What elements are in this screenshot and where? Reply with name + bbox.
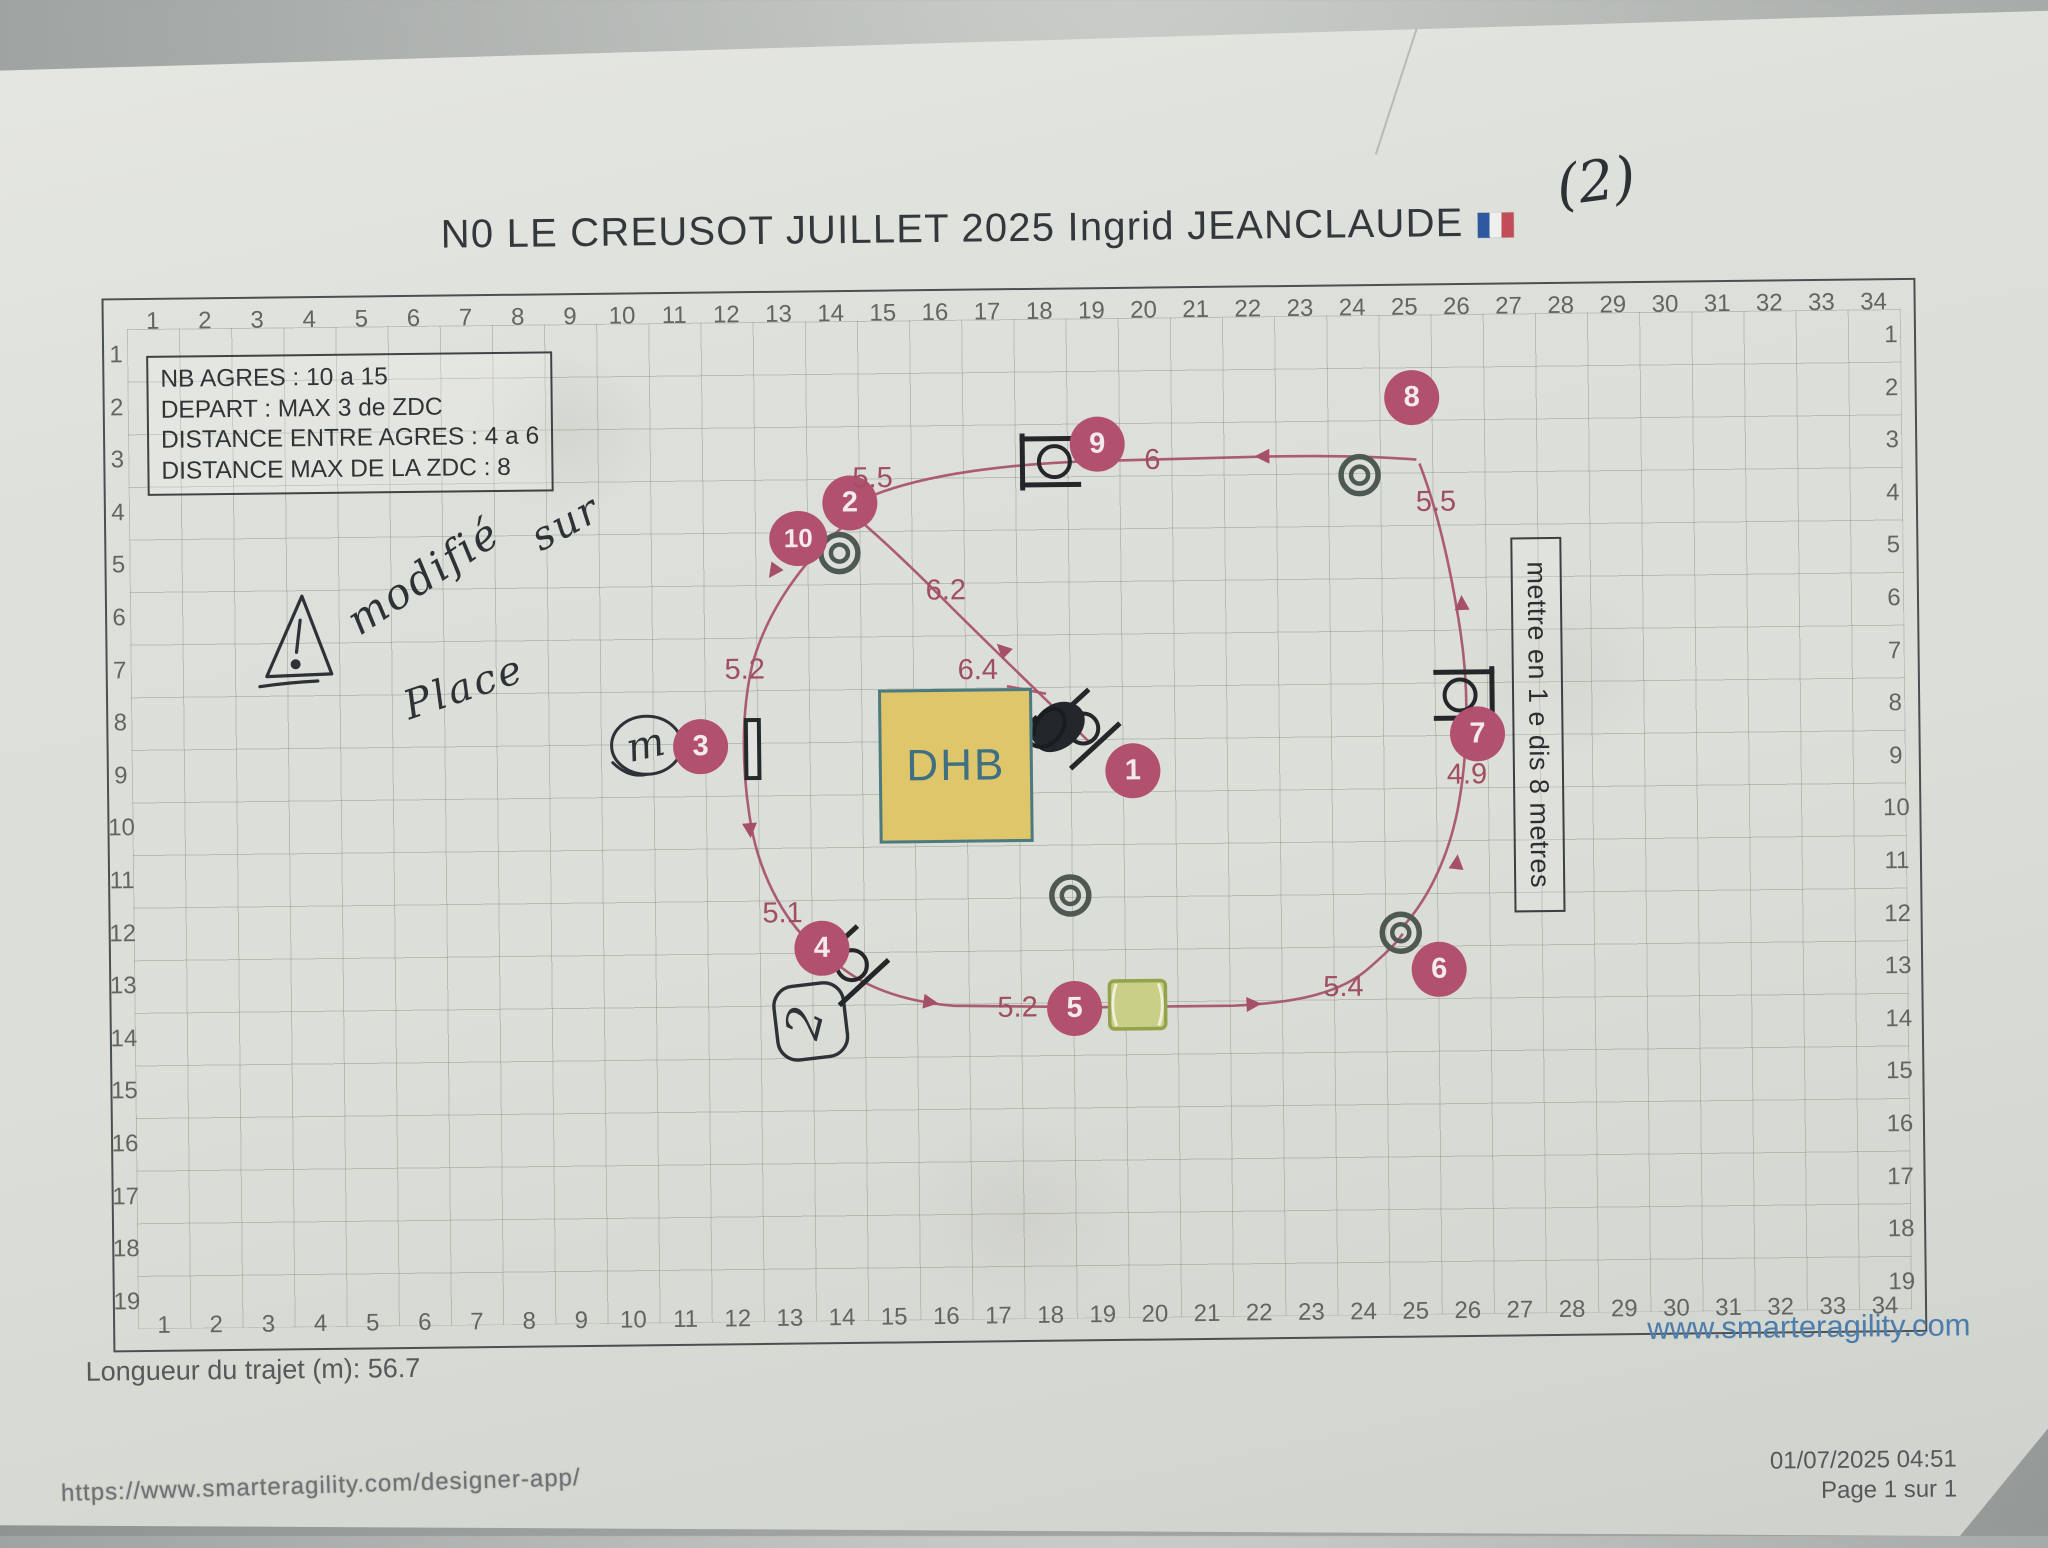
course-path bbox=[1399, 463, 1468, 925]
path-arrowhead bbox=[922, 994, 939, 1011]
course-length-text: Longueur du trajet (m): 56.7 bbox=[85, 1353, 420, 1388]
path-arrowhead bbox=[1449, 853, 1466, 870]
path-arrowhead bbox=[763, 561, 784, 582]
course-path bbox=[845, 455, 1417, 519]
tunnel-entrance-icon bbox=[1382, 914, 1419, 951]
distance-label: 5.5 bbox=[1416, 486, 1457, 519]
path-arrowhead bbox=[742, 823, 758, 839]
print-page-number: Page 1 sur 1 bbox=[1770, 1474, 1957, 1506]
printed-sheet: N0 LE CREUSOT JUILLET 2025 Ingrid JEANCL… bbox=[0, 0, 2048, 1536]
distance-label: 5.2 bbox=[724, 653, 765, 686]
distance-label: 4.9 bbox=[1447, 758, 1488, 791]
tunnel-entrance-icon bbox=[1052, 877, 1089, 914]
tunnel-entrance-icon bbox=[1341, 456, 1378, 493]
print-footer-date-page: 01/07/2025 04:51 Page 1 sur 1 bbox=[1770, 1444, 1958, 1506]
course-marks: 123456789105.565.56.26.45.25.15.25.44.9 bbox=[0, 0, 2040, 12]
grid-labels: 1122334455667788991010111112121313141415… bbox=[0, 0, 2040, 12]
distance-label: 5.5 bbox=[852, 462, 893, 495]
handler-note-box: mettre en 1 e dis 8 metres bbox=[1510, 537, 1565, 913]
print-datetime: 01/07/2025 04:51 bbox=[1770, 1444, 1957, 1476]
path-arrowhead bbox=[1254, 449, 1269, 464]
distance-label: 6.2 bbox=[926, 574, 967, 607]
website-text: www.smarteragility.com bbox=[1647, 1307, 1971, 1347]
bar-jump-icon-with-pen-scribble bbox=[1020, 680, 1118, 777]
distance-label: 5.2 bbox=[997, 991, 1038, 1024]
distance-label: 6 bbox=[1144, 444, 1161, 477]
distance-label: 5.1 bbox=[762, 897, 803, 930]
warning-triangle-icon bbox=[259, 596, 332, 687]
sheet-content: N0 LE CREUSOT JUILLET 2025 Ingrid JEANCL… bbox=[0, 0, 2048, 1548]
photo-of-agility-course-sheet: { "title": { "text": "N0 LE CREUSOT JUIL… bbox=[0, 0, 2048, 1536]
distance-label: 5.4 bbox=[1323, 971, 1364, 1004]
dhb-zone-box: DHB bbox=[878, 688, 1034, 844]
rigid-tunnel-icon bbox=[1109, 980, 1166, 1029]
distance-label: 6.4 bbox=[957, 654, 998, 687]
wall-jump-icon bbox=[746, 720, 760, 778]
path-arrowhead bbox=[1246, 996, 1262, 1012]
